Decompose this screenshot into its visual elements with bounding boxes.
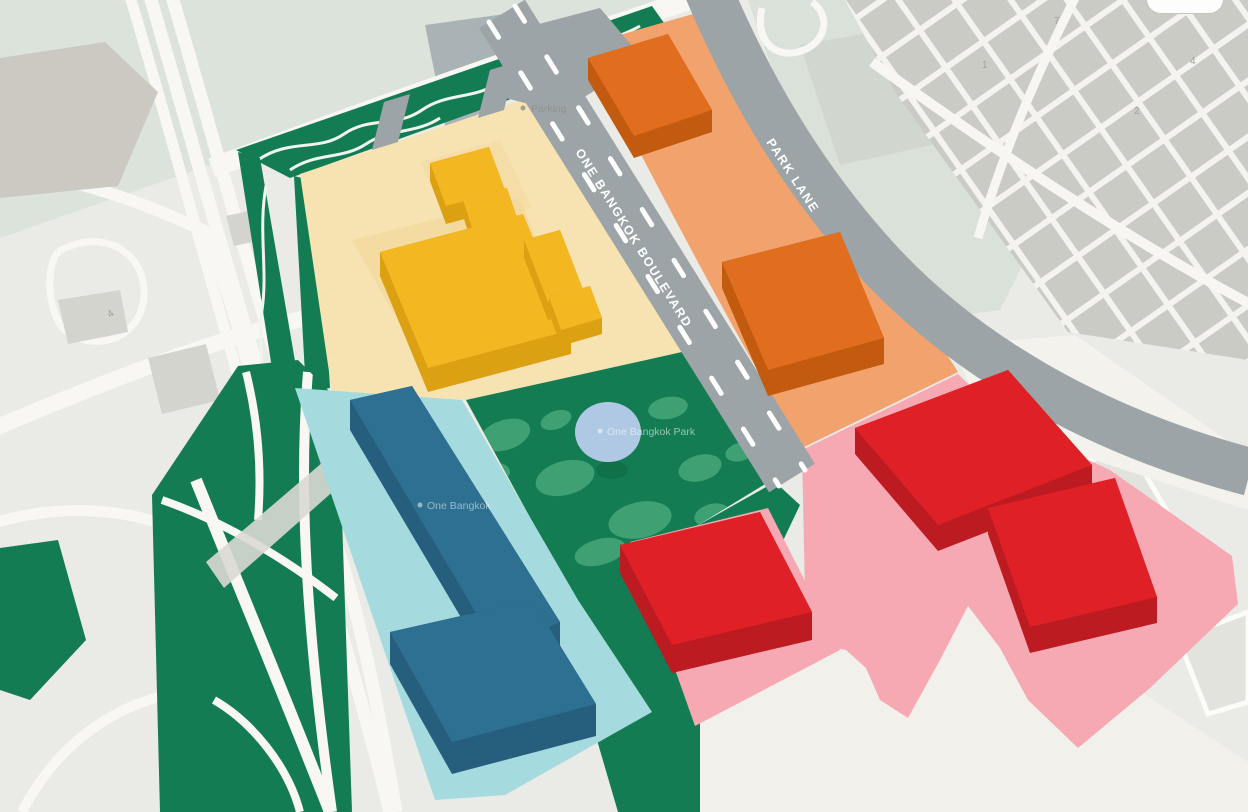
poi-dot-icon <box>598 429 603 434</box>
poi-dot-icon <box>418 503 423 508</box>
poi-dot-icon <box>521 106 526 111</box>
poi-building-label: One Bangkok <box>427 500 491 512</box>
svg-text:4: 4 <box>1190 56 1196 67</box>
poi-one-bangkok-building[interactable]: One Bangkok <box>418 500 492 512</box>
poi-one-bangkok-park[interactable]: One Bangkok Park <box>598 426 696 438</box>
map-control-button[interactable] <box>1146 0 1224 14</box>
svg-text:1: 1 <box>982 60 988 71</box>
svg-text:7: 7 <box>1054 16 1060 27</box>
svg-text:2: 2 <box>1134 106 1140 117</box>
poi-parking-label: Parking <box>531 103 567 115</box>
poi-park-label: One Bangkok Park <box>607 426 696 438</box>
site-map-svg: ONE BANGKOK BOULEVARD PARK LANE Parking … <box>0 0 1248 812</box>
map-canvas[interactable]: ONE BANGKOK BOULEVARD PARK LANE Parking … <box>0 0 1248 812</box>
